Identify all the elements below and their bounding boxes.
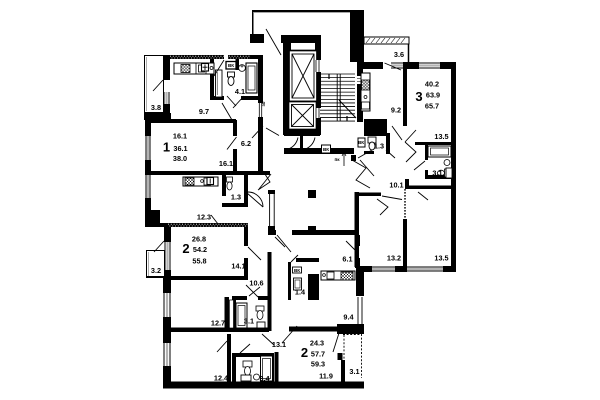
svg-text:13.5: 13.5 bbox=[434, 132, 448, 141]
svg-text:3.8: 3.8 bbox=[151, 103, 161, 112]
svg-text:зб: зб bbox=[260, 101, 266, 106]
svg-text:пк: пк bbox=[334, 157, 340, 162]
svg-text:2: 2 bbox=[301, 345, 308, 360]
svg-text:3.2: 3.2 bbox=[151, 266, 161, 275]
svg-text:3.1: 3.1 bbox=[244, 317, 254, 326]
svg-text:я: я bbox=[355, 385, 360, 388]
svg-text:1.3: 1.3 bbox=[231, 193, 241, 202]
svg-text:10.6: 10.6 bbox=[249, 279, 263, 288]
svg-text:36.1: 36.1 bbox=[173, 144, 187, 153]
svg-text:11.9: 11.9 bbox=[319, 372, 333, 381]
svg-text:54.2: 54.2 bbox=[193, 245, 207, 254]
svg-text:ВК: ВК bbox=[294, 268, 300, 273]
svg-text:1: 1 bbox=[163, 140, 170, 155]
svg-text:65.7: 65.7 bbox=[425, 102, 439, 111]
svg-text:13.2: 13.2 bbox=[387, 254, 401, 263]
svg-text:12.4: 12.4 bbox=[214, 374, 229, 383]
svg-text:4.1: 4.1 bbox=[235, 87, 245, 96]
svg-text:10.1: 10.1 bbox=[389, 181, 403, 190]
svg-text:13.5: 13.5 bbox=[434, 254, 448, 263]
svg-text:9.7: 9.7 bbox=[199, 107, 209, 116]
svg-text:26.8: 26.8 bbox=[192, 235, 206, 244]
svg-text:1.4: 1.4 bbox=[295, 288, 306, 297]
svg-text:3: 3 bbox=[415, 89, 422, 104]
svg-text:57.7: 57.7 bbox=[311, 350, 325, 359]
svg-text:24.3: 24.3 bbox=[310, 339, 324, 348]
svg-text:14.1: 14.1 bbox=[231, 262, 245, 271]
svg-text:3.6: 3.6 bbox=[394, 50, 404, 59]
svg-text:38.0: 38.0 bbox=[173, 154, 187, 163]
svg-text:12.3: 12.3 bbox=[197, 213, 211, 222]
svg-text:13.1: 13.1 bbox=[272, 340, 286, 349]
svg-text:2: 2 bbox=[182, 241, 189, 256]
svg-text:55.8: 55.8 bbox=[192, 257, 206, 266]
svg-text:40.2: 40.2 bbox=[425, 80, 439, 89]
svg-text:3.1: 3.1 bbox=[349, 367, 359, 376]
svg-text:1.3: 1.3 bbox=[374, 142, 384, 151]
svg-text:63.9: 63.9 bbox=[426, 91, 440, 100]
svg-text:ВК: ВК bbox=[358, 140, 364, 145]
svg-text:16.1: 16.1 bbox=[173, 132, 187, 141]
svg-text:9.4: 9.4 bbox=[343, 313, 354, 322]
svg-text:9.2: 9.2 bbox=[391, 106, 401, 115]
svg-text:3.4: 3.4 bbox=[259, 374, 270, 383]
svg-text:12.7: 12.7 bbox=[211, 319, 225, 328]
svg-text:ВК: ВК bbox=[228, 63, 234, 68]
svg-text:16.1: 16.1 bbox=[219, 159, 233, 168]
svg-text:3.1: 3.1 bbox=[432, 169, 442, 178]
svg-text:6.1: 6.1 bbox=[342, 255, 352, 264]
svg-text:ВК: ВК bbox=[323, 147, 329, 152]
svg-text:59.3: 59.3 bbox=[311, 360, 325, 369]
svg-text:6.2: 6.2 bbox=[241, 139, 251, 148]
